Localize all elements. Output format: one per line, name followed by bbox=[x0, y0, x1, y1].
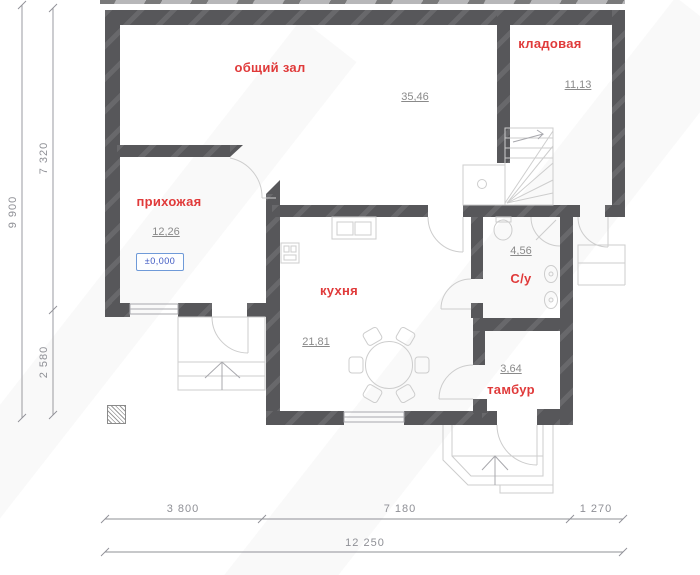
room-label-prihozhaya: прихожая bbox=[129, 194, 209, 209]
room-area-prihozhaya: 12,26 bbox=[141, 226, 191, 238]
dining-table-icon bbox=[349, 326, 429, 403]
elevation-mark[interactable]: ±0,000 bbox=[136, 253, 184, 271]
door-arc-sanuzel bbox=[441, 279, 471, 309]
room-area-obshchiy-zal: 35,46 bbox=[390, 91, 440, 103]
side-landing bbox=[578, 245, 625, 285]
room-area-kuhnya: 21,81 bbox=[291, 336, 341, 348]
window-prihozhaya bbox=[130, 304, 178, 314]
door-arc-tambur bbox=[439, 365, 473, 399]
room-label-obshchiy-zal: общий зал bbox=[215, 60, 325, 75]
shower-icon bbox=[531, 217, 560, 246]
section-hatch-icon bbox=[107, 405, 126, 424]
toilet-icon bbox=[545, 266, 558, 283]
dim-left-total: 9 900 bbox=[7, 182, 21, 242]
stove-icon bbox=[281, 243, 299, 263]
kitchen-sink-icon bbox=[332, 217, 376, 239]
room-label-kuhnya: кухня bbox=[304, 283, 374, 298]
door-arcs bbox=[212, 158, 608, 465]
dim-bottom-seg-3: 1 270 bbox=[566, 503, 626, 515]
floor-plan: общий зал 35,46 кладовая 11,13 прихожая … bbox=[0, 0, 700, 575]
room-label-tambur: тамбур bbox=[476, 382, 546, 397]
dim-left-seg-top: 7 320 bbox=[38, 128, 52, 188]
room-label-kladovaya: кладовая bbox=[510, 36, 590, 51]
room-area-kladovaya: 11,13 bbox=[553, 79, 603, 91]
washbasin-icon bbox=[494, 217, 512, 240]
porch-left-steps bbox=[178, 317, 265, 390]
dim-left-seg-bottom: 2 580 bbox=[38, 332, 52, 392]
room-area-tambur: 3,64 bbox=[486, 363, 536, 375]
room-label-sanuzel: С/у bbox=[496, 271, 546, 286]
dim-bottom-seg-2: 7 180 bbox=[370, 503, 430, 515]
window-kitchen bbox=[344, 412, 404, 422]
door-arc-prihozhaya bbox=[230, 158, 262, 198]
room-area-sanuzel: 4,56 bbox=[496, 245, 546, 257]
bidet-icon bbox=[545, 292, 558, 309]
dim-bottom-seg-1: 3 800 bbox=[153, 503, 213, 515]
door-arc-entry bbox=[497, 425, 537, 465]
door-arc-kitchen bbox=[428, 217, 463, 252]
door-arc-porch bbox=[212, 317, 248, 353]
door-arc-kladovaya bbox=[578, 217, 608, 247]
dim-bottom-total: 12 250 bbox=[330, 537, 400, 549]
staircase-icon bbox=[463, 128, 553, 205]
